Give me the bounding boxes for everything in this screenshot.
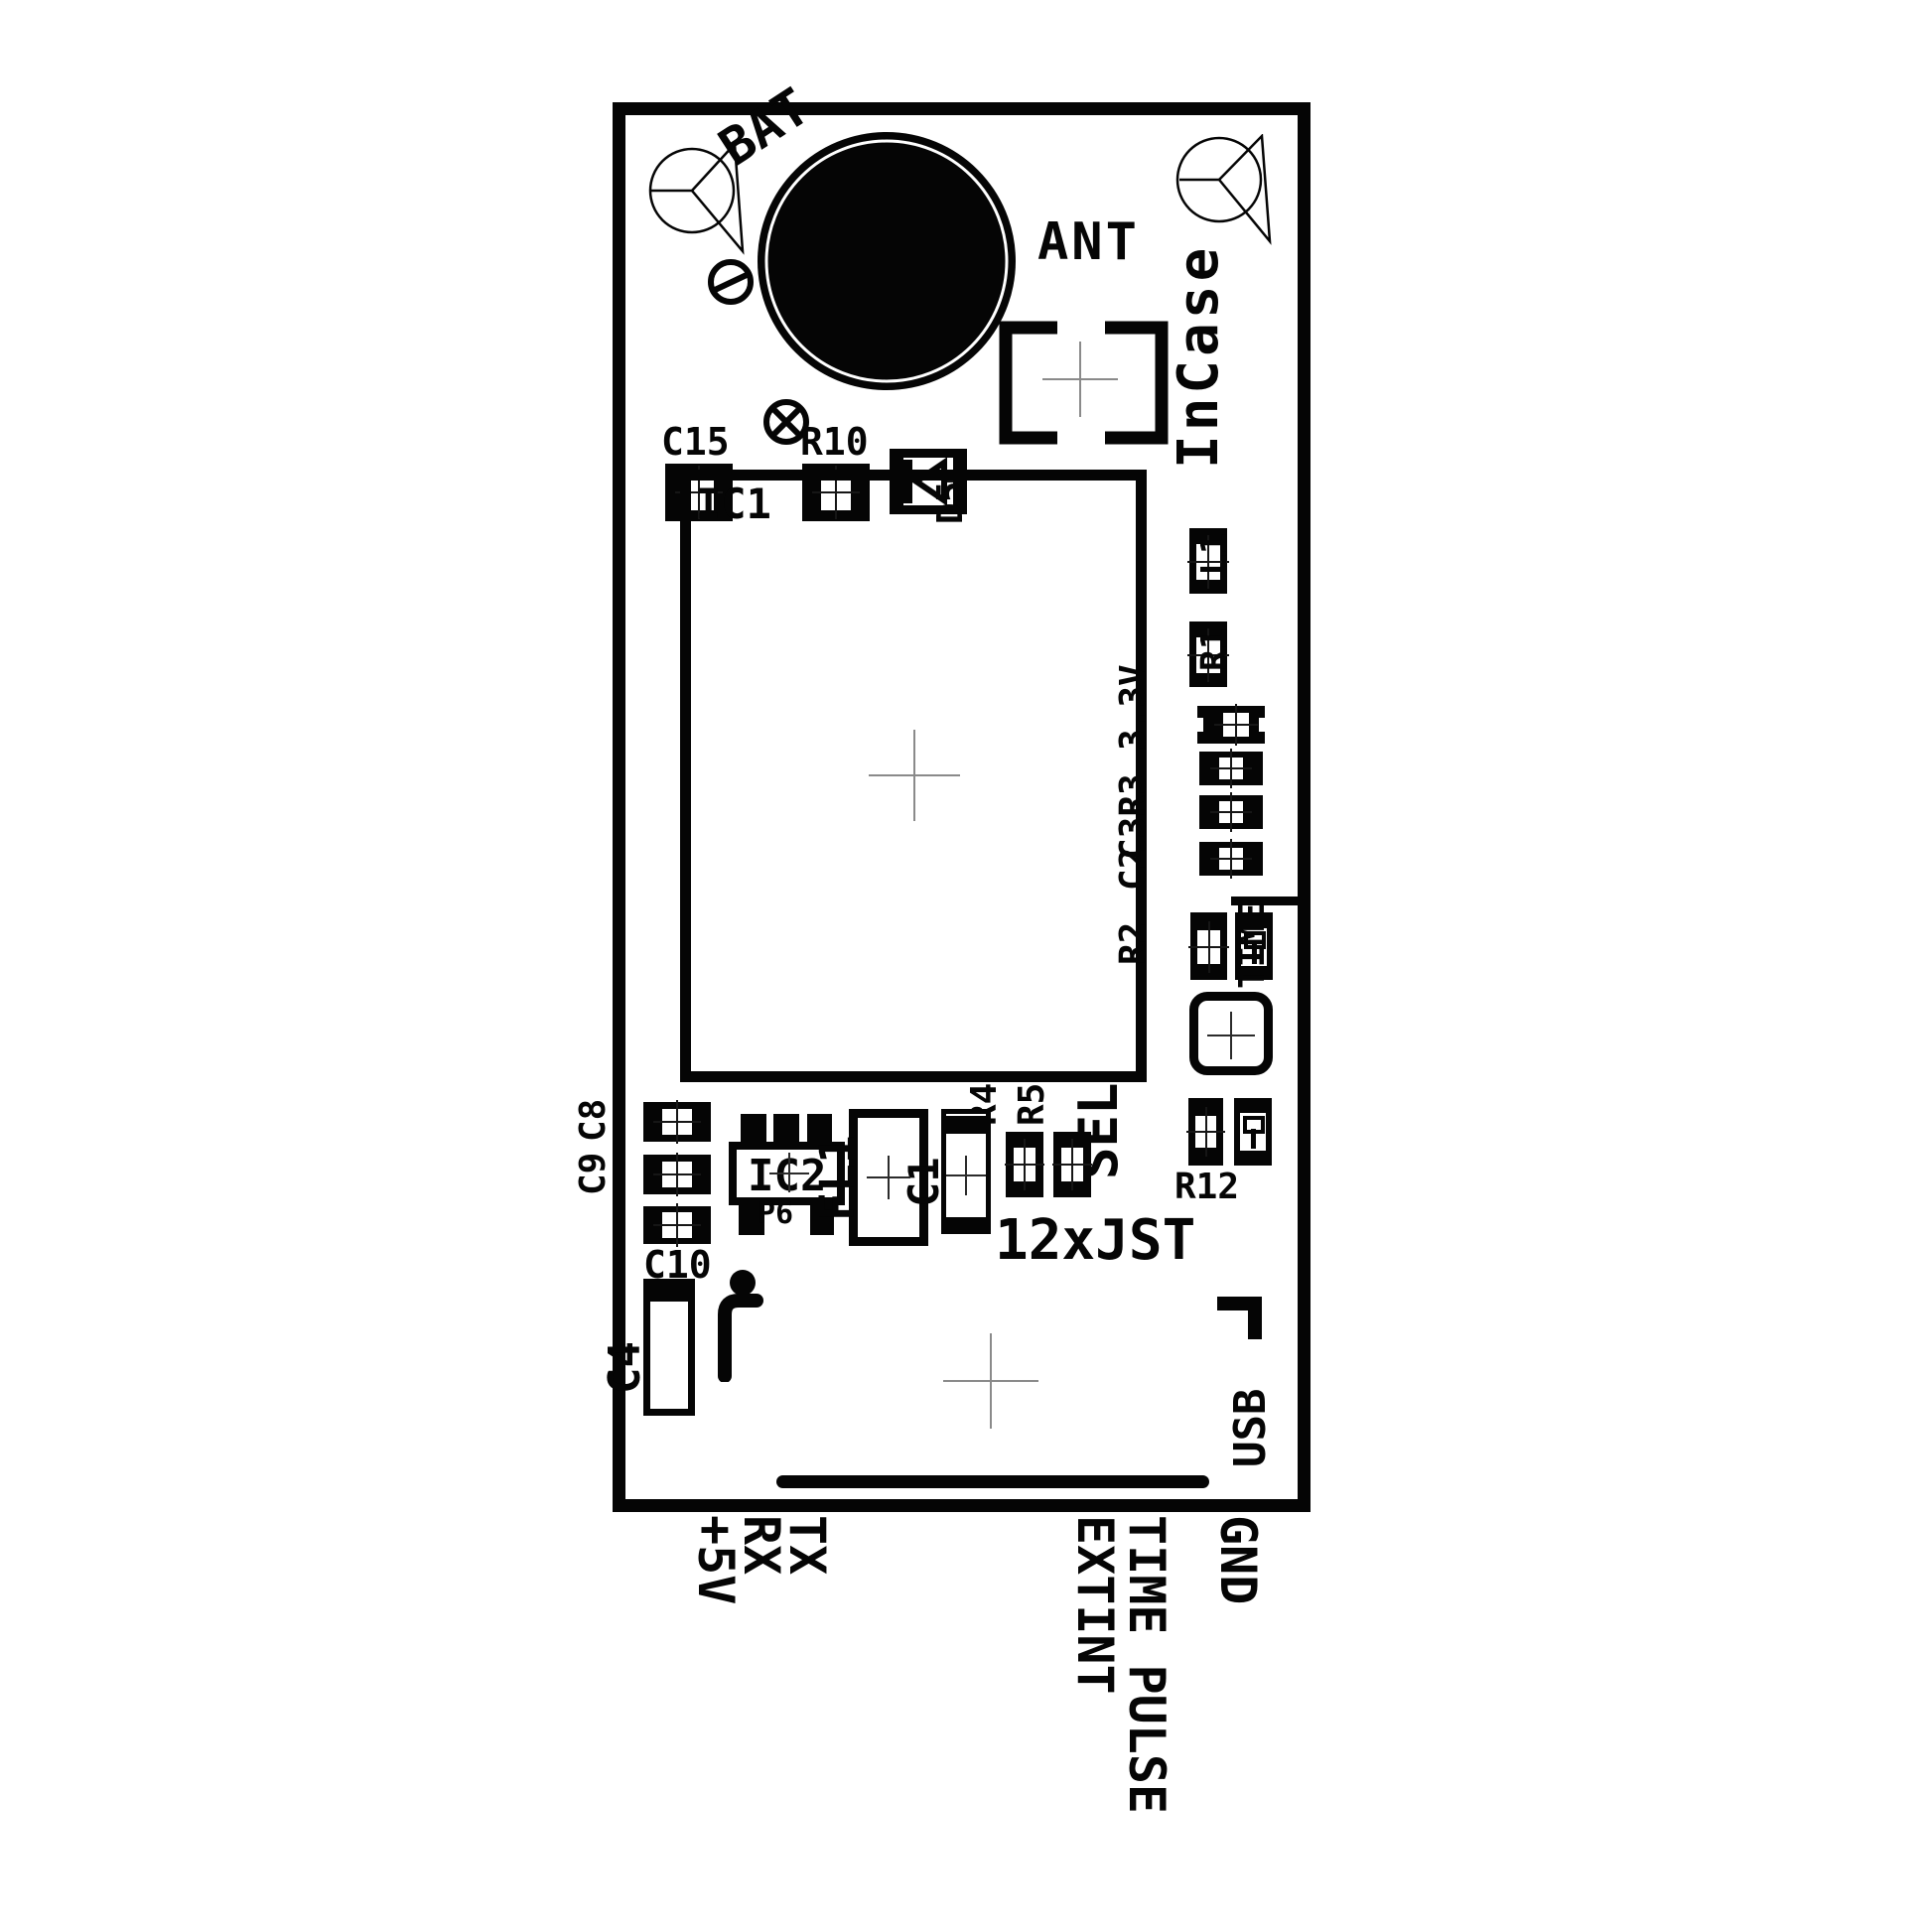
pad-c2 <box>1199 842 1263 876</box>
pad-c3 <box>1199 795 1263 829</box>
label-r2: R2 <box>1116 922 1152 965</box>
label-r5: R5 <box>1015 1083 1050 1126</box>
label-time: TIME <box>1235 902 1271 989</box>
label-c4: C4 <box>604 1341 647 1394</box>
ic2-center-cross-v <box>788 1153 790 1192</box>
label-l1: L1 <box>1197 533 1233 576</box>
pin1-corner-line <box>711 1291 770 1382</box>
connector-label: 12xJST <box>995 1213 1195 1269</box>
led-r12 <box>1234 1098 1272 1166</box>
antenna-label: ANT <box>1037 216 1140 268</box>
sel-button-cross-v <box>1230 1012 1232 1059</box>
pad-r12 <box>1188 1098 1223 1166</box>
pad-r5 <box>1053 1132 1091 1197</box>
battery-minus-icon <box>705 256 759 310</box>
pad-c10 <box>643 1206 711 1244</box>
c4-top-band <box>643 1284 695 1302</box>
pcb-layout-canvas: BAT C15 R10 D5 ANT <box>0 0 1932 1931</box>
label-c2: C2 <box>1116 848 1152 891</box>
antenna-pads <box>998 321 1176 445</box>
usb-front-line <box>776 1475 1209 1488</box>
label-c8: C8 <box>576 1099 612 1142</box>
fl1-center-cross-v <box>888 1156 890 1199</box>
label-c15: C15 <box>661 423 730 461</box>
pad-c9 <box>643 1155 711 1194</box>
label-ic1: IC1 <box>696 483 771 525</box>
usb-center-cross-v <box>990 1333 992 1429</box>
ic1-center-cross-v <box>913 730 915 821</box>
pad-c8 <box>643 1102 711 1142</box>
label-r10: R10 <box>800 423 869 461</box>
pad-r4 <box>1006 1132 1043 1197</box>
led-3v3 <box>1197 706 1265 744</box>
label-r1: R1 <box>1197 628 1233 671</box>
label-c9: C9 <box>576 1153 612 1195</box>
c1-center-cross-v <box>965 1156 967 1195</box>
usb-corner-mark <box>1215 1294 1269 1345</box>
c1-top-band <box>941 1116 991 1134</box>
pin-label-time-pulse: TIME PULSE <box>1122 1515 1172 1814</box>
brand-label: InCase <box>1172 244 1227 469</box>
battery-circle <box>755 129 1019 393</box>
pad-r3 <box>1199 752 1263 785</box>
label-p6: P6 <box>758 1199 793 1229</box>
label-r12: R12 <box>1174 1170 1239 1205</box>
pin-label-extint: EXTINT <box>1070 1515 1120 1695</box>
pin-label-plus5v: +5V <box>691 1515 741 1604</box>
c1-bottom-band <box>941 1217 991 1233</box>
label-3v3: 3.3V <box>1116 664 1152 751</box>
label-c1: C1 <box>903 1157 945 1207</box>
pad-r2 <box>1190 912 1227 980</box>
antenna-center-cross-v <box>1079 342 1081 417</box>
label-fl1: FL1 <box>814 1135 862 1221</box>
label-usb: USB <box>1229 1389 1273 1467</box>
pin-label-gnd: GND <box>1213 1515 1263 1604</box>
